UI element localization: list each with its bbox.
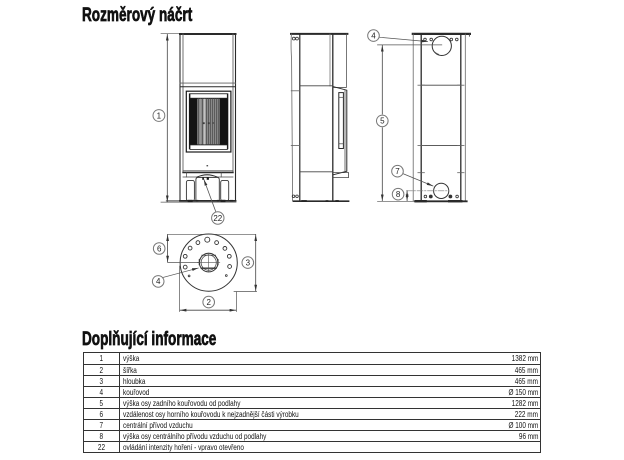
svg-text:4: 4 — [371, 31, 376, 40]
svg-text:8: 8 — [396, 190, 401, 199]
svg-text:3: 3 — [246, 258, 251, 267]
svg-text:22: 22 — [213, 214, 222, 223]
svg-text:1: 1 — [157, 111, 162, 120]
svg-text:6: 6 — [157, 244, 162, 253]
svg-text:7: 7 — [395, 167, 400, 176]
svg-text:4: 4 — [156, 277, 161, 286]
svg-text:5: 5 — [380, 117, 385, 126]
svg-text:2: 2 — [206, 298, 211, 307]
